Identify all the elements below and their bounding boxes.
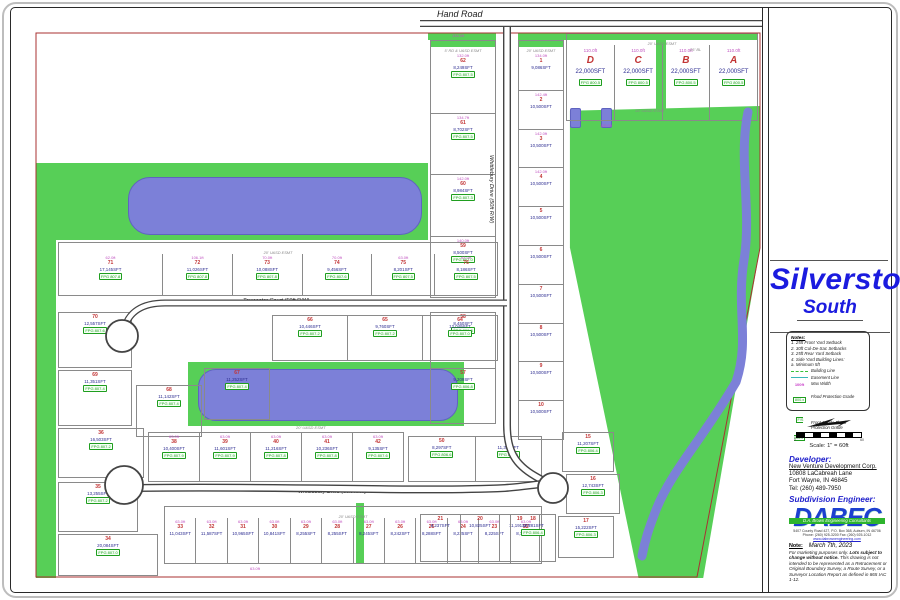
lot-block-col-right-of-road: 20' U&SD ESMT134.0ft19,086SFT142.4ft210,… <box>518 40 564 440</box>
easement-line-swatch <box>791 377 808 378</box>
lot-area: 22,000SFT <box>623 69 653 76</box>
disclaimer-note: Note: March 7th, 2023 For marketing purp… <box>789 543 889 582</box>
flood-protection-grade: FPG 807.2 <box>86 497 109 504</box>
lot-10: 1010,500SFT <box>519 401 563 439</box>
pond <box>128 177 422 235</box>
lot-41: 63.0ft4110,236SFTFPG 807.8 <box>302 433 353 481</box>
lot-area: 10,500SFT <box>530 332 552 337</box>
developer-phone: Tel: (260) 489-7950 <box>789 486 889 493</box>
max-width-swatch: 100ft <box>791 382 808 387</box>
flood-protection-grade: FPG 807.6 <box>325 273 348 280</box>
lot-50: 508,297SFTFPG 806.6 <box>409 437 476 481</box>
subdivision-subtitle: South <box>797 297 863 321</box>
lot-area: 10,500SFT <box>530 293 552 298</box>
plat-date: March 7th, 2023 <box>809 543 852 549</box>
scale-label: Scale: 1" = 60ft <box>788 443 870 449</box>
lot-number: 32 <box>209 525 215 530</box>
flood-protection-grade: FPG 807.9 <box>162 452 185 459</box>
lot-cells: 62.0ft7117,145SFTFPG 807.8106.1ft7211,02… <box>59 254 497 295</box>
lot-number: D <box>587 56 594 66</box>
lot-block-lot-36: 3616,503SFTFPG 807.2 <box>58 428 144 478</box>
flood-protection-grade: FPG 807.3 <box>451 194 474 201</box>
flood-protection-grade: FPG 807.2 <box>89 443 112 450</box>
lot-26: 63.0ft268,242SFT <box>385 518 416 563</box>
lot-block-lot-16: 1612,743SFTFPG 806.3 <box>566 474 620 514</box>
lot-block-lot-15: 1511,207SFTFPG 806.4 <box>562 432 614 472</box>
lot-number: 28 <box>335 525 341 530</box>
road-label: Hand Road <box>437 9 483 19</box>
lot-area: 8,702SFT <box>453 127 472 132</box>
lot-area: 10,500SFT <box>530 143 552 148</box>
lot-area: 9,086SFT <box>531 65 550 70</box>
scale-right-value: 60 <box>860 438 864 442</box>
lot-2: 142.4ft210,500SFT <box>519 91 563 130</box>
lot-area: 11,216SFT <box>265 446 286 451</box>
lot-number: 73 <box>264 261 270 266</box>
lot-area: 12,281SFT <box>522 523 544 528</box>
road-label: Towcester Court (50ft R/W) <box>243 298 309 304</box>
lot-60: 142.0ft608,984SFTFPG 807.3 <box>431 175 495 237</box>
flood-protection-grade: FPG 807.2 <box>298 330 321 337</box>
lot-number: C <box>635 56 642 66</box>
lot-number: 21 <box>438 517 444 522</box>
flood-protection-grade: FPG 800.5 <box>674 79 697 86</box>
lot-number: 60 <box>460 182 466 187</box>
lot-area: 10,088SFT <box>256 267 278 272</box>
lot-20: 2010,825SFT <box>461 515 501 561</box>
lot-number: 29 <box>303 525 309 530</box>
lot-number: 70 <box>92 315 98 320</box>
lot-21: 218,237SFT <box>421 515 461 561</box>
lot-cells: 134.0ft19,086SFT142.4ft210,500SFT142.0ft… <box>519 52 563 439</box>
lot-dimension: 110.0ft <box>584 49 597 53</box>
subdivision-title: Silverstone <box>770 264 890 296</box>
lot-number: 4 <box>540 175 543 180</box>
lot-number: 51 <box>505 439 511 444</box>
building-line-swatch <box>791 371 808 372</box>
lot-29: 63.0ft298,255SFT <box>291 518 322 563</box>
lot-number: 7 <box>540 287 543 292</box>
lot-cells: 1715,222SFTFPG 806.3 <box>559 517 613 557</box>
dabec-banner: D.A. Brown Engineering Consultants <box>789 518 885 524</box>
lot-57: 579,209SFTFPG 806.8 <box>431 369 495 424</box>
flood-protection-grade: FPG 807.5 <box>451 71 474 78</box>
lot-number: 68 <box>166 388 172 393</box>
lot-40: 63.0ft4011,216SFTFPG 807.8 <box>251 433 302 481</box>
scale-left-value: 0 <box>794 438 796 442</box>
green-common-area <box>518 33 566 40</box>
lot-number: 34 <box>105 537 111 542</box>
flood-protection-grade: FPG 807.4 <box>225 383 248 390</box>
lot-dimension: 134.7ft <box>457 116 469 120</box>
lot-cells: 63.0ft3810,400SFTFPG 807.963.0ft3911,601… <box>149 433 403 481</box>
lot-number: 3 <box>540 137 543 142</box>
lot-number: 2 <box>540 98 543 103</box>
lot-34: 3420,084SFTFPG 807.0 <box>59 535 157 575</box>
lot-cells: 6610,446SFTFPG 807.2659,760SFTFPG 807.26… <box>273 316 497 360</box>
lot-number: 20 <box>477 517 483 522</box>
flood-protection-grade: FPG 807.9 <box>213 452 236 459</box>
lot-number: 27 <box>366 525 372 530</box>
developer-name: New Venture Development Corp. <box>789 464 889 471</box>
lot-area: 22,000SFT <box>719 69 749 76</box>
flood-protection-grade: FPG 807.4 <box>83 385 106 392</box>
lot-number: 16 <box>590 477 596 482</box>
title-block-separator <box>762 8 769 592</box>
lot-74: 70.0ft749,456SFTFPG 807.6 <box>303 254 373 295</box>
flood-protection-grade: FPG 806.8 <box>451 383 474 390</box>
flood-protection-grade: FPG 800.5 <box>626 79 649 86</box>
lot-block-lot-69: 6911,351SFTFPG 807.4 <box>58 370 132 426</box>
lot-number: 38 <box>171 440 177 445</box>
lot-area: 8,245SFT <box>359 531 378 536</box>
lot-cells: 6911,351SFTFPG 807.4 <box>59 371 131 425</box>
lot-area: 11,351SFT <box>84 379 105 384</box>
lot-area: 10,500SFT <box>530 104 552 109</box>
lot-area: 8,297SFT <box>432 445 451 450</box>
flood-protection-grade: FPG 807.5 <box>451 133 474 140</box>
flood-protection-grade: FPG 807.6 <box>83 327 106 334</box>
lot-number: 62 <box>460 59 466 64</box>
lot-area: 17,145SFT <box>100 267 122 272</box>
lot-8: 810,500SFT <box>519 324 563 363</box>
lot-area: 13,255SFT <box>87 491 109 496</box>
lot-51: 5111,336SFTFPG 806.6 <box>476 437 542 481</box>
flood-protection-grade: FPG 806.4 <box>576 447 599 454</box>
developer-address-1: 10808 LaCabreah Lane <box>789 471 889 478</box>
dimension-label: 110.0ft <box>600 124 612 128</box>
lot-block-lot-70: 7012,557SFTFPG 807.6 <box>58 312 132 368</box>
lot-number: 5 <box>540 209 543 214</box>
lot-6: 610,500SFT <box>519 246 563 285</box>
notes-legend-box: Notes: 1. 25ft Front Yard Setback 2. 30f… <box>786 331 870 411</box>
easement-label: 20' U&SD ESMT <box>296 425 326 430</box>
lot-block-lot-35: 3513,255SFTFPG 807.2 <box>58 482 138 532</box>
note-body: For marketing purposes only. <box>789 550 849 555</box>
lot-area: 8,237SFT <box>431 523 450 528</box>
flood-protection-grade: FPG 807.5 <box>392 273 415 280</box>
developer-address-2: Fort Wayne, IN 46845 <box>789 478 889 485</box>
flood-protection-grade: FPG 807.0 <box>96 549 119 556</box>
lot-block-lot-67: 6711,252SFTFPG 807.4 <box>204 368 270 420</box>
lot-B: 110.0ftB22,000SFTFPG 800.5 <box>663 45 711 120</box>
lot-number: 31 <box>240 525 246 530</box>
lot-block-lot-18: 1812,281SFTFPG 806.4 <box>510 514 556 562</box>
lot-65: 659,760SFTFPG 807.2 <box>348 316 423 360</box>
flood-protection-grade: FPG 807.8 <box>99 273 122 280</box>
lot-area: 12,049SFT <box>449 324 471 329</box>
lot-number: 18 <box>530 517 536 522</box>
lot-number: 66 <box>307 318 313 323</box>
lot-area: 11,336SFT <box>498 445 519 450</box>
dabec-logo-text: DABEC <box>789 505 885 529</box>
lot-number: 42 <box>375 440 381 445</box>
lot-number: B <box>682 56 689 66</box>
lot-block-lot-68: 6811,142SFTFPG 807.4 <box>136 385 202 437</box>
flood-protection-grade: FPG 807.8 <box>186 273 209 280</box>
lot-66: 6610,446SFTFPG 807.2 <box>273 316 348 360</box>
lot-cells: 6711,252SFTFPG 807.4 <box>205 369 269 419</box>
lot-dimension: 110.0ft <box>727 49 740 53</box>
flood-protection-grade: FPG 806.3 <box>581 489 604 496</box>
lot-number: 61 <box>460 121 466 126</box>
lot-cells: 3420,084SFTFPG 807.0 <box>59 535 157 575</box>
lot-15: 1511,207SFTFPG 806.4 <box>563 433 613 471</box>
lot-number: 40 <box>273 440 279 445</box>
note-item: a. Minimum 5ft <box>791 362 865 368</box>
lot-number: 9 <box>540 364 543 369</box>
dabec-website: www.dabrownengineering.com <box>789 537 885 542</box>
lot-cells: 7012,557SFTFPG 807.6 <box>59 313 131 367</box>
lot-64: 6412,049SFTFPG 807.0 <box>423 316 497 360</box>
easement-green-strip <box>567 34 757 40</box>
lot-number: 6 <box>540 248 543 253</box>
easement-green-strip <box>519 41 563 47</box>
lot-area: 10,500SFT <box>530 181 552 186</box>
lot-number: A <box>730 56 737 66</box>
lot-number: 41 <box>324 440 330 445</box>
flood-protection-grade: FPG 807.5 <box>454 273 477 280</box>
flood-protection-grade: FPG 807.8 <box>256 273 279 280</box>
lot-area: 16,503SFT <box>90 437 112 442</box>
lot-block-row-above-whittlebury: 63.0ft3810,400SFTFPG 807.963.0ft3911,601… <box>148 432 404 482</box>
lot-area: 10,500SFT <box>530 370 552 375</box>
lot-17: 1715,222SFTFPG 806.3 <box>559 517 613 557</box>
lot-area: 8,255SFT <box>328 531 347 536</box>
lot-cells: 508,297SFTFPG 806.65111,336SFTFPG 806.6 <box>409 437 541 481</box>
lot-number: 72 <box>195 261 201 266</box>
lot-7: 710,500SFT <box>519 285 563 324</box>
lot-73: 70.0ft7310,088SFTFPG 807.8 <box>233 254 303 295</box>
lot-area: 9,760SFT <box>375 324 394 329</box>
legend-label: Flood Protection Grade <box>811 395 854 400</box>
lot-area: 10,500SFT <box>530 215 552 220</box>
lot-68: 6811,142SFTFPG 807.4 <box>137 386 201 436</box>
dabec-logo: DABEC D.A. Brown Engineering Consultants… <box>789 505 885 542</box>
lot-number: 64 <box>457 318 463 323</box>
lot-number: 76 <box>463 261 469 266</box>
lot-69: 6911,351SFTFPG 807.4 <box>59 371 131 425</box>
lot-4: 142.0ft410,500SFT <box>519 168 563 207</box>
green-common-area <box>36 240 56 578</box>
road-label: Whittlebury Drive (50ft R/W) <box>488 155 494 223</box>
lot-area: 9,456SFT <box>327 267 346 272</box>
lot-area: 10,500SFT <box>530 409 552 414</box>
lot-33: 63.0ft3311,043SFT <box>165 518 196 563</box>
lot-area: 9,209SFT <box>453 377 472 382</box>
legend-label: Max Width <box>811 382 831 387</box>
lot-area: 11,026SFT <box>187 267 208 272</box>
road-label: Whittlebury Drive (50ft R/W) <box>298 489 366 495</box>
flood-protection-grade: FPG 807.0 <box>448 330 471 337</box>
flood-protection-grade: FPG 806.6 <box>430 451 453 458</box>
lot-area: 8,186SFT <box>456 267 475 272</box>
flood-protection-grade: FPG 807.8 <box>264 452 287 459</box>
lot-number: 35 <box>95 485 101 490</box>
lot-number: 75 <box>400 261 406 266</box>
lot-number: 65 <box>382 318 388 323</box>
lot-area: 11,601SFT <box>214 446 235 451</box>
lot-block-lot-17: 1715,222SFTFPG 806.3 <box>558 516 614 558</box>
lot-cells: 3616,503SFTFPG 807.2 <box>59 429 143 477</box>
lot-area: 10,841SFT <box>264 531 286 536</box>
lot-number: 30 <box>272 525 278 530</box>
lot-70: 7012,557SFTFPG 807.6 <box>59 313 131 367</box>
lot-area: 20,084SFT <box>97 543 119 548</box>
legend-label: Building Line <box>811 369 835 374</box>
lot-number: 67 <box>234 371 240 376</box>
lot-cells: 1612,743SFTFPG 806.3 <box>567 475 619 513</box>
lot-number: 71 <box>108 261 114 266</box>
lot-number: 15 <box>585 435 591 440</box>
lot-1: 134.0ft19,086SFT <box>519 52 563 91</box>
lot-9: 910,500SFT <box>519 362 563 401</box>
lot-area: 22,000SFT <box>671 69 701 76</box>
lot-number: 10 <box>538 403 544 408</box>
lot-area: 11,252SFT <box>226 377 247 382</box>
lot-30: 63.0ft3010,841SFT <box>259 518 290 563</box>
lot-72: 106.1ft7211,026SFTFPG 807.8 <box>163 254 233 295</box>
lot-3: 142.0ft310,500SFT <box>519 130 563 169</box>
lot-area: 12,743SFT <box>582 483 604 488</box>
legend-label: Easement Line <box>811 376 839 381</box>
lot-61: 134.7ft618,702SFTFPG 807.5 <box>431 114 495 176</box>
lot-75: 63.0ft758,201SFTFPG 807.5 <box>372 254 435 295</box>
lot-number: 69 <box>92 373 98 378</box>
lot-area: 8,242SFT <box>391 531 410 536</box>
easement-green-strip <box>431 41 495 47</box>
lot-area: 11,142SFT <box>158 394 179 399</box>
lot-A: 110.0ftA22,000SFTFPG 800.5 <box>710 45 757 120</box>
lot-5: 510,500SFT <box>519 207 563 246</box>
lot-number: 1 <box>540 59 543 64</box>
lot-area: 11,587SFT <box>201 531 222 536</box>
lot-42: 63.0ft429,135SFTFPG 807.6 <box>353 433 403 481</box>
lot-number: 8 <box>540 326 543 331</box>
lot-cells: 3513,255SFTFPG 807.2 <box>59 483 137 531</box>
lot-35: 3513,255SFTFPG 807.2 <box>59 483 137 531</box>
flood-protection-grade: FPG 807.6 <box>366 452 389 459</box>
dimension-label: 63.0ft <box>250 567 260 571</box>
lot-area: 11,043SFT <box>170 531 191 536</box>
lot-76: 63.0ft768,186SFTFPG 807.5 <box>435 254 497 295</box>
note-label: Note: <box>789 543 803 549</box>
lot-dimension: 142.0ft <box>535 132 547 136</box>
lot-31: 63.0ft3110,965SFT <box>228 518 259 563</box>
flood-protection-grade: FPG 806.4 <box>521 529 544 536</box>
flood-protection-grade: FPG 806.3 <box>574 531 597 538</box>
lot-area: 8,249SFT <box>453 65 472 70</box>
lot-number: 50 <box>439 439 445 444</box>
easement-label: 15' U&SD ESMT <box>635 108 665 113</box>
lot-area: 15,222SFT <box>575 525 597 530</box>
lot-cells: 6811,142SFTFPG 807.4 <box>137 386 201 436</box>
lot-area: 10,236SFT <box>316 446 338 451</box>
lot-area: 10,500SFT <box>530 254 552 259</box>
lot-number: 26 <box>397 525 403 530</box>
title-rule-top <box>770 260 888 261</box>
lot-18: 1812,281SFTFPG 806.4 <box>511 515 555 561</box>
lot-cells: 1812,281SFTFPG 806.4 <box>511 515 555 561</box>
flood-protection-grade: FPG 800.5 <box>722 79 745 86</box>
lot-38: 63.0ft3810,400SFTFPG 807.9 <box>149 433 200 481</box>
lot-block-row-below-towcester-east: 6610,446SFTFPG 807.2659,760SFTFPG 807.26… <box>272 315 498 361</box>
lot-area: 22,000SFT <box>576 69 606 76</box>
lot-number: 33 <box>177 525 183 530</box>
lot-area: 9,135SFT <box>368 446 387 451</box>
fpg-swatch: 800.x <box>793 397 806 403</box>
lot-area: 8,984SFT <box>453 188 472 193</box>
lot-D: 110.0ftD22,000SFTFPG 800.5 <box>567 45 615 120</box>
lot-block-row-above-towcester: 20' U&SD ESMT62.0ft7117,145SFTFPG 807.81… <box>58 242 498 296</box>
lot-block-lot-34: 3420,084SFTFPG 807.0 <box>58 534 158 576</box>
lot-number: 17 <box>583 519 589 524</box>
flood-protection-grade: FPG 806.6 <box>497 451 520 458</box>
lot-area: 12,557SFT <box>84 321 106 326</box>
lot-number: 36 <box>98 431 104 436</box>
lot-28: 63.0ft288,255SFT <box>322 518 353 563</box>
lot-62: 132.0ft628,249SFTFPG 807.5 <box>431 52 495 114</box>
lot-area: 8,201SFT <box>394 267 413 272</box>
lot-number: 74 <box>334 261 340 266</box>
lot-area: 10,446SFT <box>299 324 321 329</box>
lot-27: 63.0ft278,245SFT <box>354 518 385 563</box>
lot-32: 63.0ft3211,587SFT <box>196 518 227 563</box>
dimension-label: 134.0ft <box>452 34 464 38</box>
easement-label: 25' BL <box>690 47 701 52</box>
flood-protection-grade: FPG 807.8 <box>315 452 338 459</box>
lot-39: 63.0ft3911,601SFTFPG 807.9 <box>200 433 251 481</box>
lot-area: 10,965SFT <box>232 531 254 536</box>
flood-protection-grade: FPG 807.2 <box>373 330 396 337</box>
lot-area: 11,207SFT <box>577 441 598 446</box>
lot-area: 8,255SFT <box>296 531 315 536</box>
lot-36: 3616,503SFTFPG 807.2 <box>59 429 143 477</box>
north-arrow-icon <box>805 416 853 430</box>
lot-71: 62.0ft7117,145SFTFPG 807.8 <box>59 254 163 295</box>
developer-heading: Developer: <box>789 455 889 464</box>
lot-cells: 1511,207SFTFPG 806.4 <box>563 433 613 471</box>
flood-protection-grade: FPG 807.4 <box>157 400 180 407</box>
lot-block-row-above-whittlebury-east: 508,297SFTFPG 806.65111,336SFTFPG 806.6 <box>408 436 542 482</box>
lot-67: 6711,252SFTFPG 807.4 <box>205 369 269 419</box>
lot-number: 57 <box>460 371 466 376</box>
lot-dimension: 110.0ft <box>631 49 644 53</box>
lot-area: 10,825SFT <box>469 523 491 528</box>
lot-area: 10,400SFT <box>163 446 185 451</box>
plat-sheet: 5' RD & U&SD ESMT132.0ft628,249SFTFPG 80… <box>0 0 900 600</box>
lot-number: 39 <box>222 440 228 445</box>
lot-16: 1612,743SFTFPG 806.3 <box>567 475 619 513</box>
flood-protection-grade: FPG 800.5 <box>579 79 602 86</box>
